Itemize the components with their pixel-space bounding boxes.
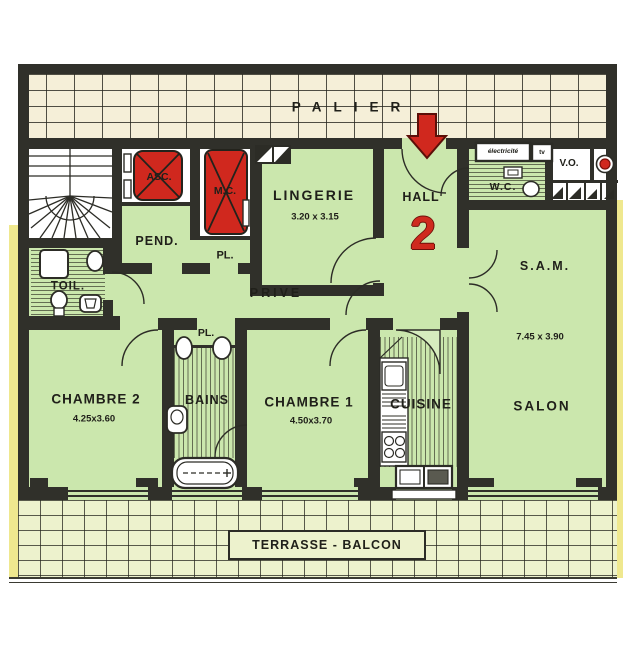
vo-label: V.O. [559,159,578,169]
mc-label: M.C. [214,186,236,197]
floor-plan: PALIER ASC. M.C. PEND. PL. LINGERIE 3.20… [0,0,623,652]
prive-label: PRIVE [250,287,303,300]
pend-label: PEND. [135,235,178,248]
right-edge-strip [617,200,623,578]
pl-bains-label: PL. [198,328,214,339]
tv-label: tv [539,150,545,157]
chambre1-label: CHAMBRE 1 [264,395,353,409]
terrace-label-box: TERRASSE - BALCON [228,530,426,560]
chambre2-dims: 4.25x3.60 [73,414,115,424]
unit-number: 2 [410,210,436,256]
hall-label: HALL [402,191,439,204]
toil-label: TOIL. [51,281,85,293]
palier-label: PALIER [292,100,413,114]
lingerie-dims: 3.20 x 3.15 [291,212,339,222]
salon-label: SALON [513,399,570,413]
wc-label: W.C. [490,182,517,193]
chambre2-label: CHAMBRE 2 [51,392,140,406]
sam-dims: 7.45 x 3.90 [516,332,564,342]
lingerie-label: LINGERIE [273,188,355,202]
terrace-label: TERRASSE - BALCON [252,539,402,552]
closet-row-area [548,183,617,202]
cuisine-label: CUISINE [390,397,452,411]
bains-label: BAINS [185,394,229,407]
sam-label: S.A.M. [520,260,570,273]
left-edge-strip [9,225,18,578]
chambre1-dims: 4.50x3.70 [290,416,332,426]
stairwell-area [29,148,112,238]
pl-upper-label: PL. [216,251,233,262]
asc-label: ASC. [146,172,171,183]
electricity-label: électricité [488,149,518,156]
